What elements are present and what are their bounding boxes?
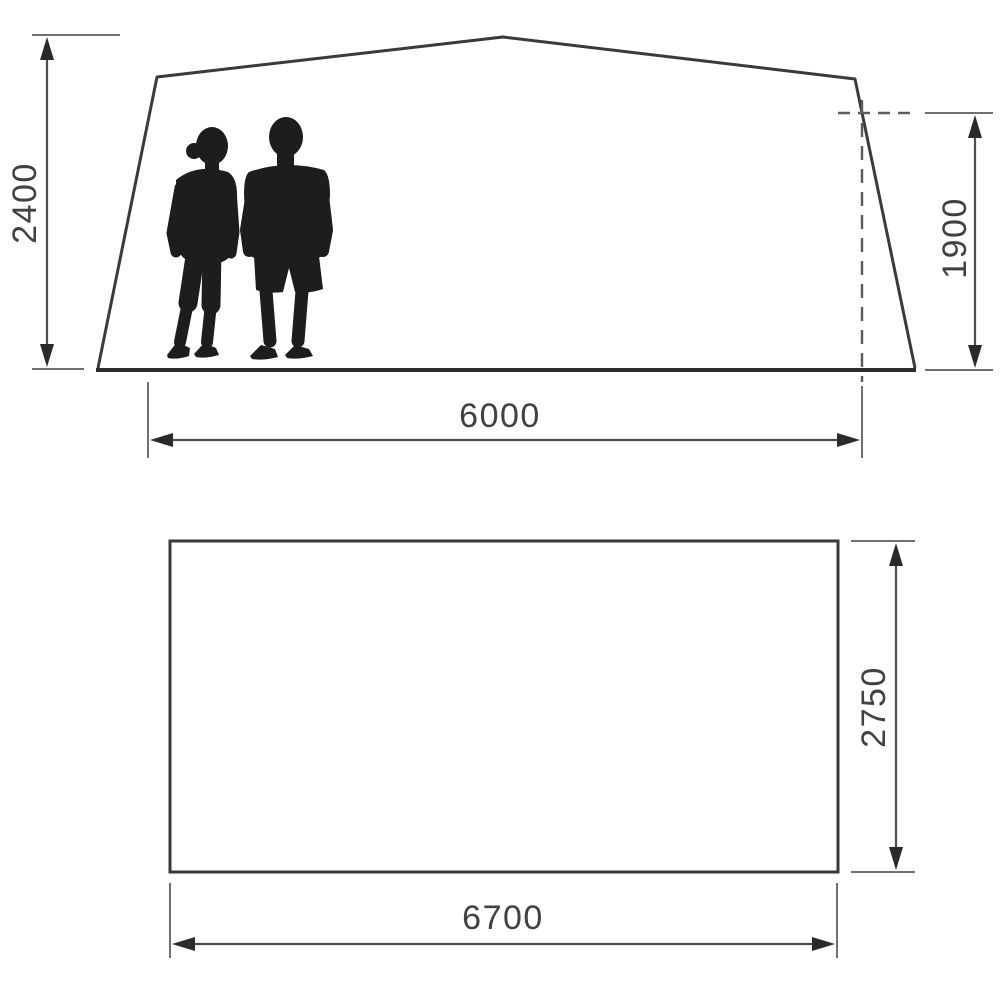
arrowhead-down [889,847,903,870]
man-right-arm [322,187,327,251]
front-height-label: 2400 [8,162,42,244]
arrowhead-down [968,345,982,368]
man-right-calf [298,291,302,341]
front-rear-height-label: 1900 [938,197,972,279]
arrowhead-right [812,937,835,951]
diagram-canvas [0,0,1000,1000]
arrowhead-up [968,115,982,138]
man-torso [244,165,330,258]
front-view [32,35,993,458]
man-silhouette [244,117,330,360]
woman-hair-bun [186,143,202,159]
arrowhead-right [837,433,860,447]
plan-depth-label: 2750 [857,666,891,748]
front-width-label: 6000 [459,399,541,433]
woman-left-calf [180,302,188,342]
man-right-foot [285,345,313,359]
arrowhead-down [40,344,54,367]
arrowhead-up [40,37,54,60]
woman-right-foot [194,343,219,358]
man-left-calf [266,291,270,341]
plan-width-label: 6700 [462,901,544,935]
floor-plan-rectangle [170,541,838,872]
woman-right-arm [231,190,234,253]
man-left-arm [246,186,253,251]
woman-left-foot [167,342,190,359]
man-left-foot [250,345,278,360]
floor-plan [170,541,915,958]
tent-dimension-diagram: 2400 1900 6000 2750 6700 [0,0,1000,1000]
woman-silhouette [167,127,237,359]
woman-right-calf [207,304,211,342]
arrowhead-left [172,937,195,951]
woman-left-arm [172,188,180,252]
arrowhead-left [150,433,173,447]
woman-left-thigh [188,250,196,303]
arrowhead-up [889,543,903,566]
woman-right-thigh [211,250,212,305]
